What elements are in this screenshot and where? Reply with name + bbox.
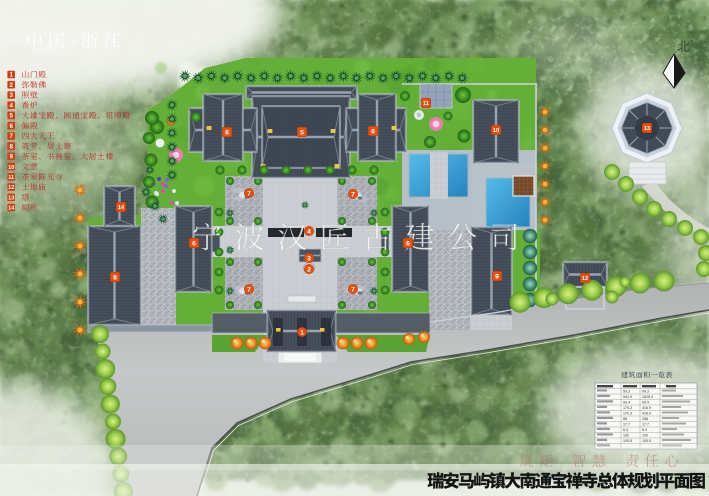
svg-text:5: 5 bbox=[300, 129, 304, 136]
svg-text:8: 8 bbox=[113, 274, 117, 281]
svg-text:6: 6 bbox=[406, 240, 410, 247]
svg-text:258: 258 bbox=[642, 417, 648, 421]
svg-text:13: 13 bbox=[8, 196, 14, 202]
svg-text:17.7: 17.7 bbox=[623, 423, 630, 427]
svg-text:2: 2 bbox=[307, 266, 311, 273]
svg-text:2: 2 bbox=[9, 82, 13, 89]
svg-text:105.5: 105.5 bbox=[623, 439, 632, 443]
svg-text:12: 12 bbox=[582, 276, 588, 282]
svg-text:6.4: 6.4 bbox=[642, 428, 647, 432]
svg-text:99.3: 99.3 bbox=[623, 390, 630, 394]
svg-text:541.9: 541.9 bbox=[623, 395, 632, 399]
svg-text:6: 6 bbox=[371, 128, 375, 135]
svg-text:99.4: 99.4 bbox=[623, 401, 630, 405]
svg-text:3: 3 bbox=[9, 92, 13, 99]
svg-text:86: 86 bbox=[623, 417, 627, 421]
svg-text:6: 6 bbox=[9, 123, 13, 130]
svg-text:7: 7 bbox=[351, 191, 355, 198]
svg-text:105.5: 105.5 bbox=[642, 439, 651, 443]
svg-text:5: 5 bbox=[9, 113, 13, 120]
svg-text:14: 14 bbox=[118, 205, 125, 211]
svg-text:10: 10 bbox=[8, 165, 14, 171]
svg-text:3: 3 bbox=[307, 255, 311, 262]
svg-text:4: 4 bbox=[9, 102, 13, 109]
svg-text:11: 11 bbox=[8, 175, 14, 181]
svg-text:6.4: 6.4 bbox=[623, 428, 628, 432]
svg-text:99.3: 99.3 bbox=[642, 390, 649, 394]
svg-text:8: 8 bbox=[9, 143, 13, 150]
svg-text:6: 6 bbox=[225, 129, 229, 136]
svg-text:100: 100 bbox=[642, 434, 648, 438]
svg-text:11: 11 bbox=[423, 101, 429, 107]
svg-text:7: 7 bbox=[9, 133, 13, 140]
svg-text:7: 7 bbox=[247, 286, 251, 293]
svg-text:13: 13 bbox=[644, 126, 650, 132]
svg-text:100: 100 bbox=[623, 434, 629, 438]
svg-text:4: 4 bbox=[307, 228, 311, 235]
svg-text:6: 6 bbox=[192, 240, 196, 247]
svg-text:7: 7 bbox=[351, 286, 355, 293]
svg-text:1: 1 bbox=[9, 72, 13, 79]
svg-text:416.9: 416.9 bbox=[642, 412, 651, 416]
svg-text:9: 9 bbox=[495, 273, 499, 280]
svg-text:12: 12 bbox=[8, 185, 14, 191]
svg-text:1625.4: 1625.4 bbox=[642, 395, 653, 399]
svg-text:7: 7 bbox=[247, 190, 251, 197]
svg-text:14: 14 bbox=[8, 206, 15, 212]
svg-text:99.4: 99.4 bbox=[642, 401, 649, 405]
svg-text:170.3: 170.3 bbox=[623, 412, 632, 416]
svg-text:1: 1 bbox=[300, 329, 304, 336]
svg-text:170.3: 170.3 bbox=[623, 406, 632, 410]
svg-text:17.7: 17.7 bbox=[642, 423, 649, 427]
svg-text:10: 10 bbox=[493, 128, 499, 134]
svg-text:9: 9 bbox=[9, 154, 13, 161]
svg-text:416.9: 416.9 bbox=[642, 406, 651, 410]
